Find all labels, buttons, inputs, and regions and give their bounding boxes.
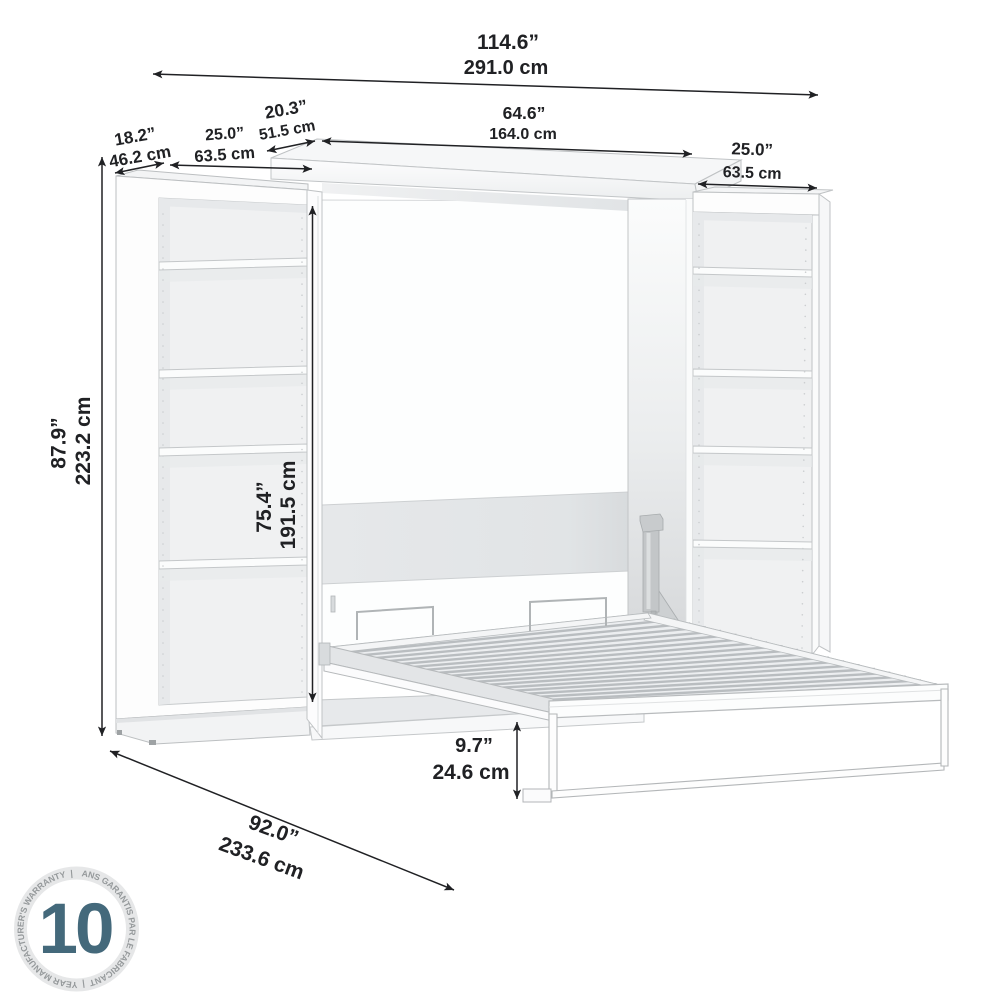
svg-text:10: 10 (39, 890, 112, 969)
svg-text:191.5 cm: 191.5 cm (277, 461, 300, 550)
svg-text:223.2 cm: 223.2 cm (72, 397, 95, 486)
svg-text:25.0”: 25.0” (205, 125, 245, 145)
svg-text:64.6”: 64.6” (503, 103, 546, 123)
svg-text:25.0”: 25.0” (731, 139, 773, 159)
svg-text:24.6 cm: 24.6 cm (432, 761, 509, 784)
svg-text:291.0 cm: 291.0 cm (464, 57, 549, 79)
svg-text:114.6”: 114.6” (477, 31, 539, 54)
svg-text:9.7”: 9.7” (455, 735, 493, 757)
svg-text:87.9”: 87.9” (48, 417, 71, 468)
svg-text:164.0 cm: 164.0 cm (489, 126, 557, 143)
svg-text:75.4”: 75.4” (253, 481, 276, 532)
svg-text:63.5 cm: 63.5 cm (723, 164, 782, 183)
